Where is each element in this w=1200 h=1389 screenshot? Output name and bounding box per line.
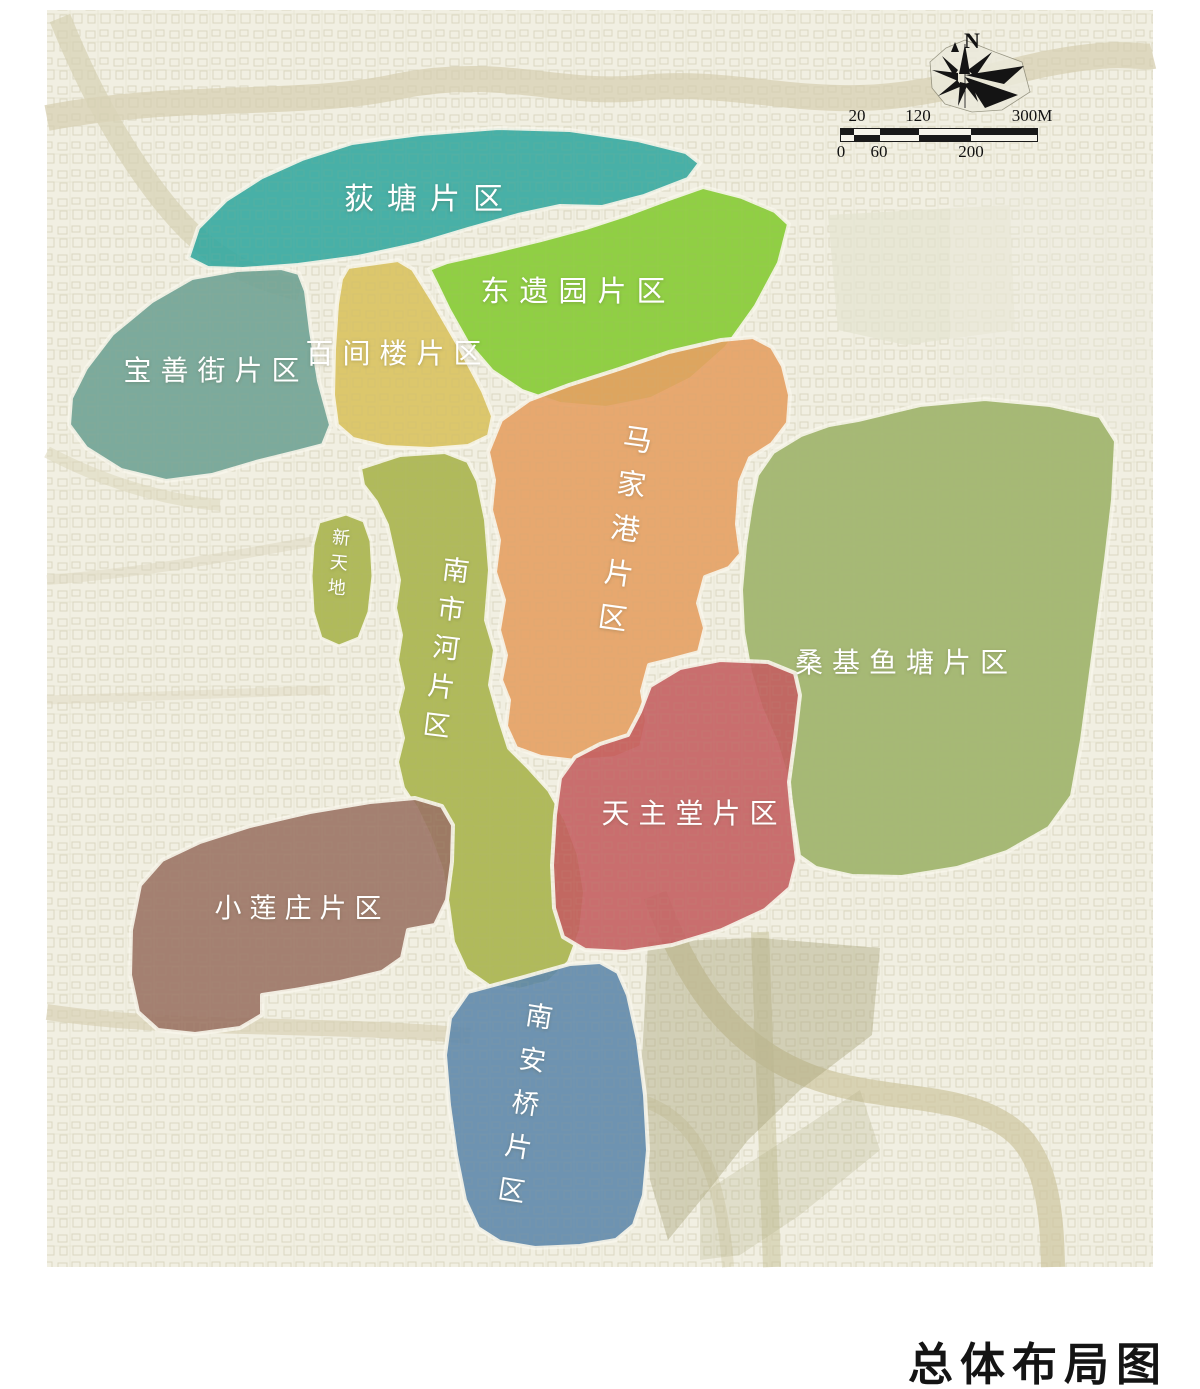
north-label: N	[964, 28, 980, 54]
scale-segment	[880, 129, 919, 135]
region-label-baijianlou: 百间楼片区	[305, 332, 490, 372]
region-label-tianzhutang: 天主堂片区	[601, 792, 786, 832]
region-label-xiaolianzhuang: 小莲庄片区	[215, 887, 390, 926]
scale-tick-label: 120	[905, 106, 931, 126]
page-title: 总体布局图	[908, 1328, 1168, 1389]
scale-tick-label: 60	[871, 142, 888, 162]
scale-segment	[971, 129, 1037, 135]
scale-tick-label: 200	[958, 142, 984, 162]
scale-tick-label: 20	[849, 106, 866, 126]
region-label-ditang: 荻塘片区	[344, 174, 516, 218]
scale-segment	[854, 135, 880, 141]
scale-bar: 20 120 300M 0 60 200	[838, 106, 1053, 158]
scale-segment	[841, 129, 854, 135]
scale-tick-label: 300M	[1012, 106, 1053, 126]
region-label-sangjiyutang: 桑基鱼塘片区	[795, 641, 1017, 681]
master-plan-map: 荻塘片区 东遗园片区 宝善街片区 百间楼片区 马家港片区 桑基鱼塘片区 南市河片…	[0, 0, 1200, 1389]
scale-tick-label: 0	[837, 142, 846, 162]
scale-segment	[919, 135, 971, 141]
map-canvas	[0, 0, 1200, 1389]
region-label-dongyiyuan: 东遗园片区	[480, 268, 675, 310]
region-label-baoshanjie: 宝善街片区	[123, 349, 308, 389]
scale-bar-strip	[840, 128, 1038, 142]
